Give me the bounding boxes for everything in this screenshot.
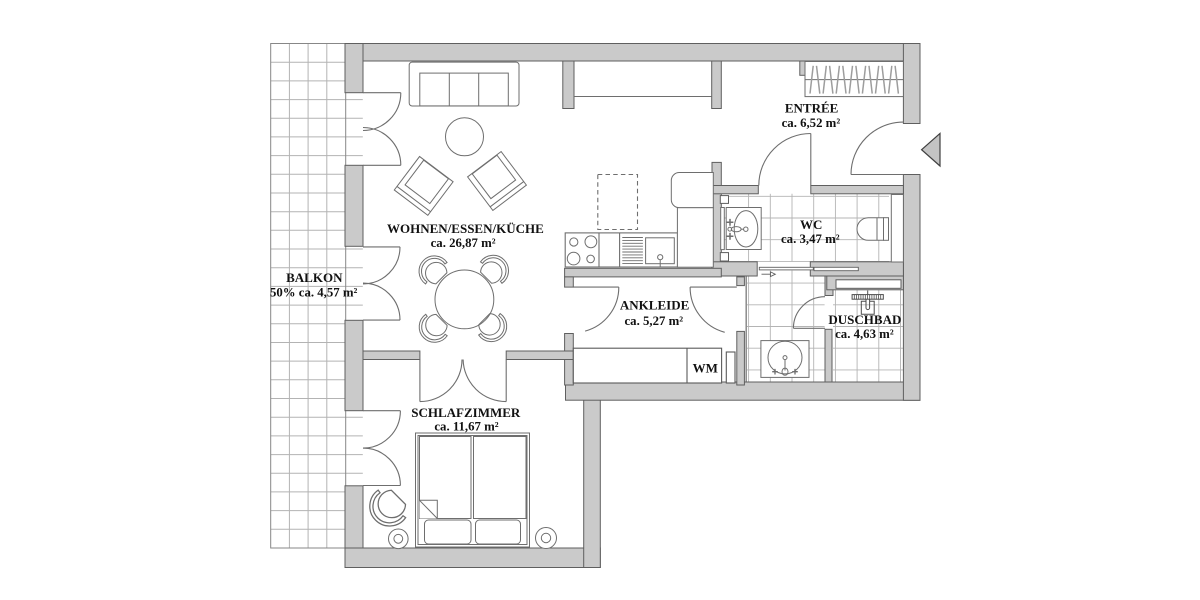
svg-text:WC: WC — [800, 217, 822, 232]
svg-text:DUSCHBAD: DUSCHBAD — [828, 312, 901, 327]
svg-text:WM: WM — [693, 360, 718, 375]
svg-text:BALKON: BALKON — [286, 270, 343, 285]
svg-text:ca. 6,52 m²: ca. 6,52 m² — [782, 116, 841, 130]
svg-text:ca. 26,87 m²: ca. 26,87 m² — [431, 236, 496, 250]
svg-text:SCHLAFZIMMER: SCHLAFZIMMER — [411, 405, 521, 420]
svg-text:ENTRÉE: ENTRÉE — [785, 101, 838, 116]
svg-text:ca. 3,47 m²: ca. 3,47 m² — [781, 232, 840, 246]
svg-text:ca. 4,63 m²: ca. 4,63 m² — [835, 327, 894, 341]
svg-text:ca. 11,67 m²: ca. 11,67 m² — [434, 419, 498, 433]
svg-text:WOHNEN/ESSEN/KÜCHE: WOHNEN/ESSEN/KÜCHE — [387, 221, 544, 236]
svg-text:50% ca. 4,57 m²: 50% ca. 4,57 m² — [270, 285, 358, 299]
svg-text:ca. 5,27 m²: ca. 5,27 m² — [625, 314, 684, 328]
svg-text:ANKLEIDE: ANKLEIDE — [620, 297, 689, 312]
